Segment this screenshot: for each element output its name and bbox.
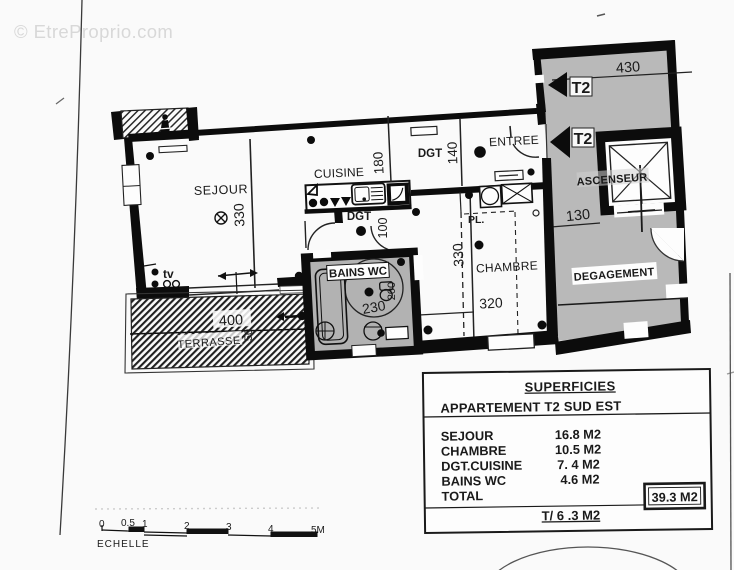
svg-text:T2: T2 xyxy=(574,131,593,148)
svg-text:SEJOUR: SEJOUR xyxy=(441,428,494,444)
svg-text:320: 320 xyxy=(479,294,503,311)
svg-text:TOTAL: TOTAL xyxy=(442,488,484,504)
svg-text:SEJOUR: SEJOUR xyxy=(194,182,249,198)
svg-text:APPARTEMENT T2 SUD EST: APPARTEMENT T2 SUD EST xyxy=(440,398,621,416)
svg-text:PL.: PL. xyxy=(468,214,484,226)
svg-text:4.6 M2: 4.6 M2 xyxy=(560,472,599,488)
svg-text:DGT: DGT xyxy=(418,148,442,160)
svg-text:7. 4 M2: 7. 4 M2 xyxy=(557,457,600,473)
svg-text:430: 430 xyxy=(615,59,640,77)
svg-text:130: 130 xyxy=(565,207,591,225)
svg-text:200: 200 xyxy=(386,282,398,300)
svg-text:330: 330 xyxy=(230,203,247,227)
svg-text:DGT.CUISINE: DGT.CUISINE xyxy=(441,458,523,474)
svg-text:16.8 M2: 16.8 M2 xyxy=(555,427,601,443)
svg-text:SUPERFICIES: SUPERFICIES xyxy=(524,378,615,394)
svg-text:BAINS WC: BAINS WC xyxy=(441,473,506,489)
svg-text:50: 50 xyxy=(243,329,255,341)
svg-text:tv: tv xyxy=(163,267,174,281)
svg-text:T2: T2 xyxy=(572,80,591,97)
svg-text:10.5 M2: 10.5 M2 xyxy=(555,442,601,458)
svg-text:140: 140 xyxy=(445,141,461,164)
svg-text:330: 330 xyxy=(449,243,466,267)
svg-text:© EtreProprio.com: © EtreProprio.com xyxy=(14,21,173,42)
svg-text:ECHELLE: ECHELLE xyxy=(97,539,150,550)
svg-text:CHAMBRE: CHAMBRE xyxy=(441,443,507,459)
svg-text:400: 400 xyxy=(219,312,244,329)
svg-text:CUISINE: CUISINE xyxy=(314,165,365,181)
svg-text:T/ 6 .3 M2: T/ 6 .3 M2 xyxy=(542,508,601,524)
svg-text:180: 180 xyxy=(370,151,386,174)
svg-text:39.3 M2: 39.3 M2 xyxy=(651,489,697,505)
svg-text:100: 100 xyxy=(376,218,390,239)
svg-text:DGT: DGT xyxy=(347,211,371,223)
